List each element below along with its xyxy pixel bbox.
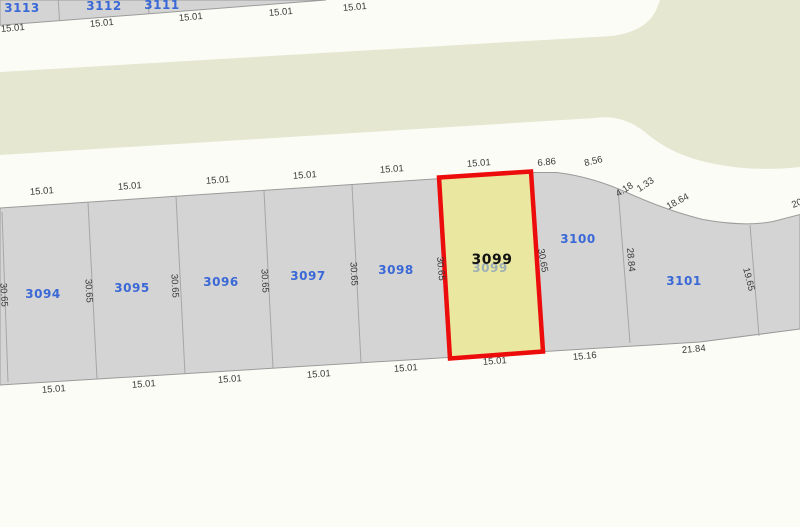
dimension-label: 30.65 — [258, 269, 270, 293]
dimension-label: 15.16 — [572, 350, 597, 363]
parcel-label-3112: 3112 — [86, 0, 121, 13]
dimension-label: 30.65 — [434, 256, 447, 281]
dimension-label: 15.01 — [268, 6, 293, 19]
dimension-label: 28.84 — [624, 247, 637, 272]
dimension-label: 15.01 — [307, 368, 331, 381]
dimension-label: 15.01 — [118, 180, 142, 193]
selected-parcel-label-3099: 3099 — [472, 252, 513, 268]
parcel-label-3096: 3096 — [203, 275, 238, 289]
parcel-map-view: 3113 3112 3111 15.01 15.01 15.01 15.01 1… — [0, 0, 800, 527]
dimension-label: 15.01 — [0, 22, 25, 35]
dimension-label: 15.01 — [30, 185, 54, 198]
dimension-label: 15.01 — [483, 355, 507, 368]
cadastral-map-canvas[interactable]: 3113 3112 3111 15.01 15.01 15.01 15.01 1… — [0, 0, 800, 527]
dimension-label: 30.65 — [168, 274, 180, 298]
dimension-label: 15.01 — [218, 373, 242, 386]
dimension-label: 15.01 — [467, 157, 491, 170]
parcel-label-3097: 3097 — [290, 269, 325, 283]
dimension-label: 30.65 — [0, 283, 10, 307]
dimension-label: 15.01 — [380, 163, 404, 176]
dimension-label: 15.01 — [293, 169, 317, 182]
parcel-label-3098: 3098 — [378, 263, 413, 277]
dimension-label: 15.01 — [42, 383, 66, 396]
parcel-label-3094: 3094 — [25, 287, 60, 301]
dimension-label: 6.86 — [537, 156, 557, 169]
parcel-label-3100: 3100 — [560, 232, 595, 246]
dimension-label: 30.65 — [347, 262, 359, 286]
dimension-label: 15.01 — [89, 17, 114, 30]
parcel-label-3095: 3095 — [114, 281, 149, 295]
parcel-label-3111: 3111 — [144, 0, 179, 12]
dimension-label: 15.01 — [132, 378, 156, 391]
dimension-label: 15.01 — [206, 174, 230, 187]
dimension-label: 21.84 — [681, 343, 706, 356]
dimension-label: 15.01 — [394, 362, 418, 375]
dimension-label: 15.01 — [178, 11, 203, 24]
parcel-label-3113: 3113 — [4, 1, 39, 15]
dimension-label: 30.65 — [82, 279, 94, 303]
parcel-label-3101: 3101 — [666, 274, 701, 288]
dimension-label: 15.01 — [342, 1, 367, 14]
